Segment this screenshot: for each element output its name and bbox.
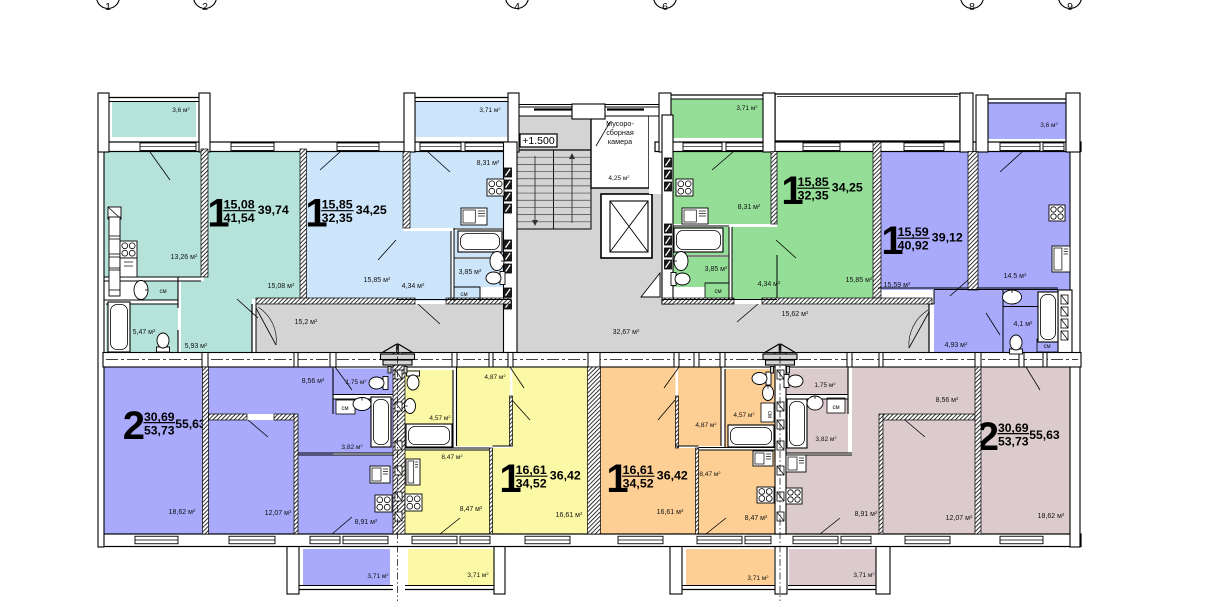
svg-text:15,85: 15,85 bbox=[322, 198, 353, 212]
svg-text:4,34 м2: 4,34 м2 bbox=[402, 282, 425, 290]
svg-text:15,2 м2: 15,2 м2 bbox=[295, 318, 318, 326]
svg-text:41,54: 41,54 bbox=[224, 211, 255, 225]
svg-text:4,87 м2: 4,87 м2 bbox=[484, 373, 506, 381]
svg-text:3,71 м2: 3,71 м2 bbox=[367, 572, 389, 580]
svg-text:3,82 м2: 3,82 м2 bbox=[341, 443, 363, 451]
svg-text:камера: камера bbox=[608, 137, 632, 146]
svg-text:4,57 м2: 4,57 м2 bbox=[733, 411, 755, 419]
svg-text:16,61 м2: 16,61 м2 bbox=[657, 508, 684, 516]
svg-text:15,08 м2: 15,08 м2 bbox=[268, 282, 295, 290]
svg-text:8,47 м2: 8,47 м2 bbox=[441, 453, 463, 461]
svg-text:32,67 м2: 32,67 м2 bbox=[613, 328, 640, 336]
svg-text:18,62 м2: 18,62 м2 bbox=[169, 508, 196, 516]
svg-text:см: см bbox=[159, 289, 166, 295]
svg-text:15,85 м2: 15,85 м2 bbox=[846, 276, 873, 284]
svg-text:8,47 м2: 8,47 м2 bbox=[745, 514, 768, 522]
svg-text:8,47 м2: 8,47 м2 bbox=[699, 470, 721, 478]
svg-text:8,31 м2: 8,31 м2 bbox=[477, 159, 500, 167]
svg-text:16,61: 16,61 bbox=[516, 463, 547, 477]
svg-text:3,71 м2: 3,71 м2 bbox=[479, 106, 501, 114]
svg-text:4,87 м2: 4,87 м2 bbox=[695, 421, 717, 429]
svg-text:53,73: 53,73 bbox=[998, 435, 1029, 449]
svg-text:см: см bbox=[1043, 344, 1050, 350]
svg-text:см: см bbox=[832, 405, 839, 411]
svg-text:32,35: 32,35 bbox=[798, 188, 829, 202]
svg-text:3,71 м2: 3,71 м2 bbox=[467, 571, 489, 579]
svg-text:3,71 м2: 3,71 м2 bbox=[736, 104, 758, 112]
svg-text:8,91 м2: 8,91 м2 bbox=[355, 518, 378, 526]
svg-text:13,26 м2: 13,26 м2 bbox=[171, 253, 198, 261]
svg-text:см: см bbox=[766, 411, 772, 418]
svg-text:34,25: 34,25 bbox=[832, 181, 863, 195]
svg-text:3,85 м2: 3,85 м2 bbox=[459, 268, 482, 276]
svg-text:15,85: 15,85 bbox=[798, 175, 829, 189]
svg-text:39,74: 39,74 bbox=[258, 203, 289, 217]
svg-text:55,63: 55,63 bbox=[175, 417, 206, 431]
svg-text:см: см bbox=[714, 289, 721, 295]
svg-text:15,85 м2: 15,85 м2 bbox=[364, 276, 391, 284]
svg-text:сборная: сборная bbox=[606, 128, 634, 137]
svg-text:см: см bbox=[341, 406, 348, 412]
svg-text:15,62 м2: 15,62 м2 bbox=[782, 310, 809, 318]
svg-text:4,25 м2: 4,25 м2 bbox=[608, 174, 630, 182]
svg-text:8: 8 bbox=[969, 1, 975, 13]
svg-text:34,52: 34,52 bbox=[516, 476, 547, 490]
svg-text:1: 1 bbox=[105, 1, 111, 13]
svg-text:55,63: 55,63 bbox=[1029, 428, 1060, 442]
svg-text:3,82 м2: 3,82 м2 bbox=[815, 435, 837, 443]
svg-text:Мусоро-: Мусоро- bbox=[606, 119, 634, 128]
svg-text:6: 6 bbox=[662, 1, 668, 13]
svg-text:14.5 м2: 14.5 м2 bbox=[1004, 272, 1027, 280]
svg-text:32,35: 32,35 bbox=[322, 211, 353, 225]
svg-text:40,92: 40,92 bbox=[898, 238, 929, 252]
svg-text:8,91 м2: 8,91 м2 bbox=[855, 510, 878, 518]
svg-text:12,07 м2: 12,07 м2 bbox=[265, 509, 292, 517]
svg-text:12,07 м2: 12,07 м2 bbox=[946, 514, 973, 522]
svg-text:39,12: 39,12 bbox=[932, 231, 963, 245]
svg-text:5,47 м2: 5,47 м2 bbox=[133, 328, 156, 336]
svg-text:3,71 м2: 3,71 м2 bbox=[747, 574, 769, 582]
svg-text:4,93 м2: 4,93 м2 bbox=[945, 341, 968, 349]
svg-text:3,71 м2: 3,71 м2 bbox=[853, 571, 875, 579]
svg-text:15,08: 15,08 bbox=[224, 198, 255, 212]
svg-text:8,31 м2: 8,31 м2 bbox=[738, 203, 761, 211]
svg-text:2: 2 bbox=[123, 404, 145, 448]
svg-text:4,57 м2: 4,57 м2 bbox=[429, 414, 451, 422]
svg-text:1,75 м2: 1,75 м2 bbox=[814, 381, 836, 389]
svg-text:15,59: 15,59 bbox=[898, 225, 929, 239]
svg-text:1,75 м2: 1,75 м2 bbox=[345, 378, 367, 386]
svg-text:8,56 м2: 8,56 м2 bbox=[302, 377, 325, 385]
svg-text:см: см bbox=[460, 292, 467, 298]
svg-text:34,25: 34,25 bbox=[356, 203, 387, 217]
svg-text:4: 4 bbox=[514, 1, 520, 13]
svg-text:9: 9 bbox=[1067, 1, 1073, 13]
svg-text:53,73: 53,73 bbox=[144, 424, 175, 438]
svg-text:5,93 м2: 5,93 м2 bbox=[185, 342, 208, 350]
svg-text:16,61: 16,61 bbox=[623, 463, 654, 477]
svg-text:+1.500: +1.500 bbox=[522, 135, 555, 147]
svg-text:8,56 м2: 8,56 м2 bbox=[936, 396, 959, 404]
svg-text:18,62 м2: 18,62 м2 bbox=[1038, 512, 1065, 520]
svg-text:2: 2 bbox=[202, 1, 208, 13]
svg-text:3,85 м2: 3,85 м2 bbox=[705, 265, 728, 273]
svg-text:36,42: 36,42 bbox=[550, 469, 581, 483]
svg-text:34,52: 34,52 bbox=[623, 476, 654, 490]
svg-text:16,61 м2: 16,61 м2 bbox=[556, 511, 583, 519]
svg-text:8,47 м2: 8,47 м2 bbox=[460, 505, 483, 513]
svg-text:36,42: 36,42 bbox=[657, 469, 688, 483]
